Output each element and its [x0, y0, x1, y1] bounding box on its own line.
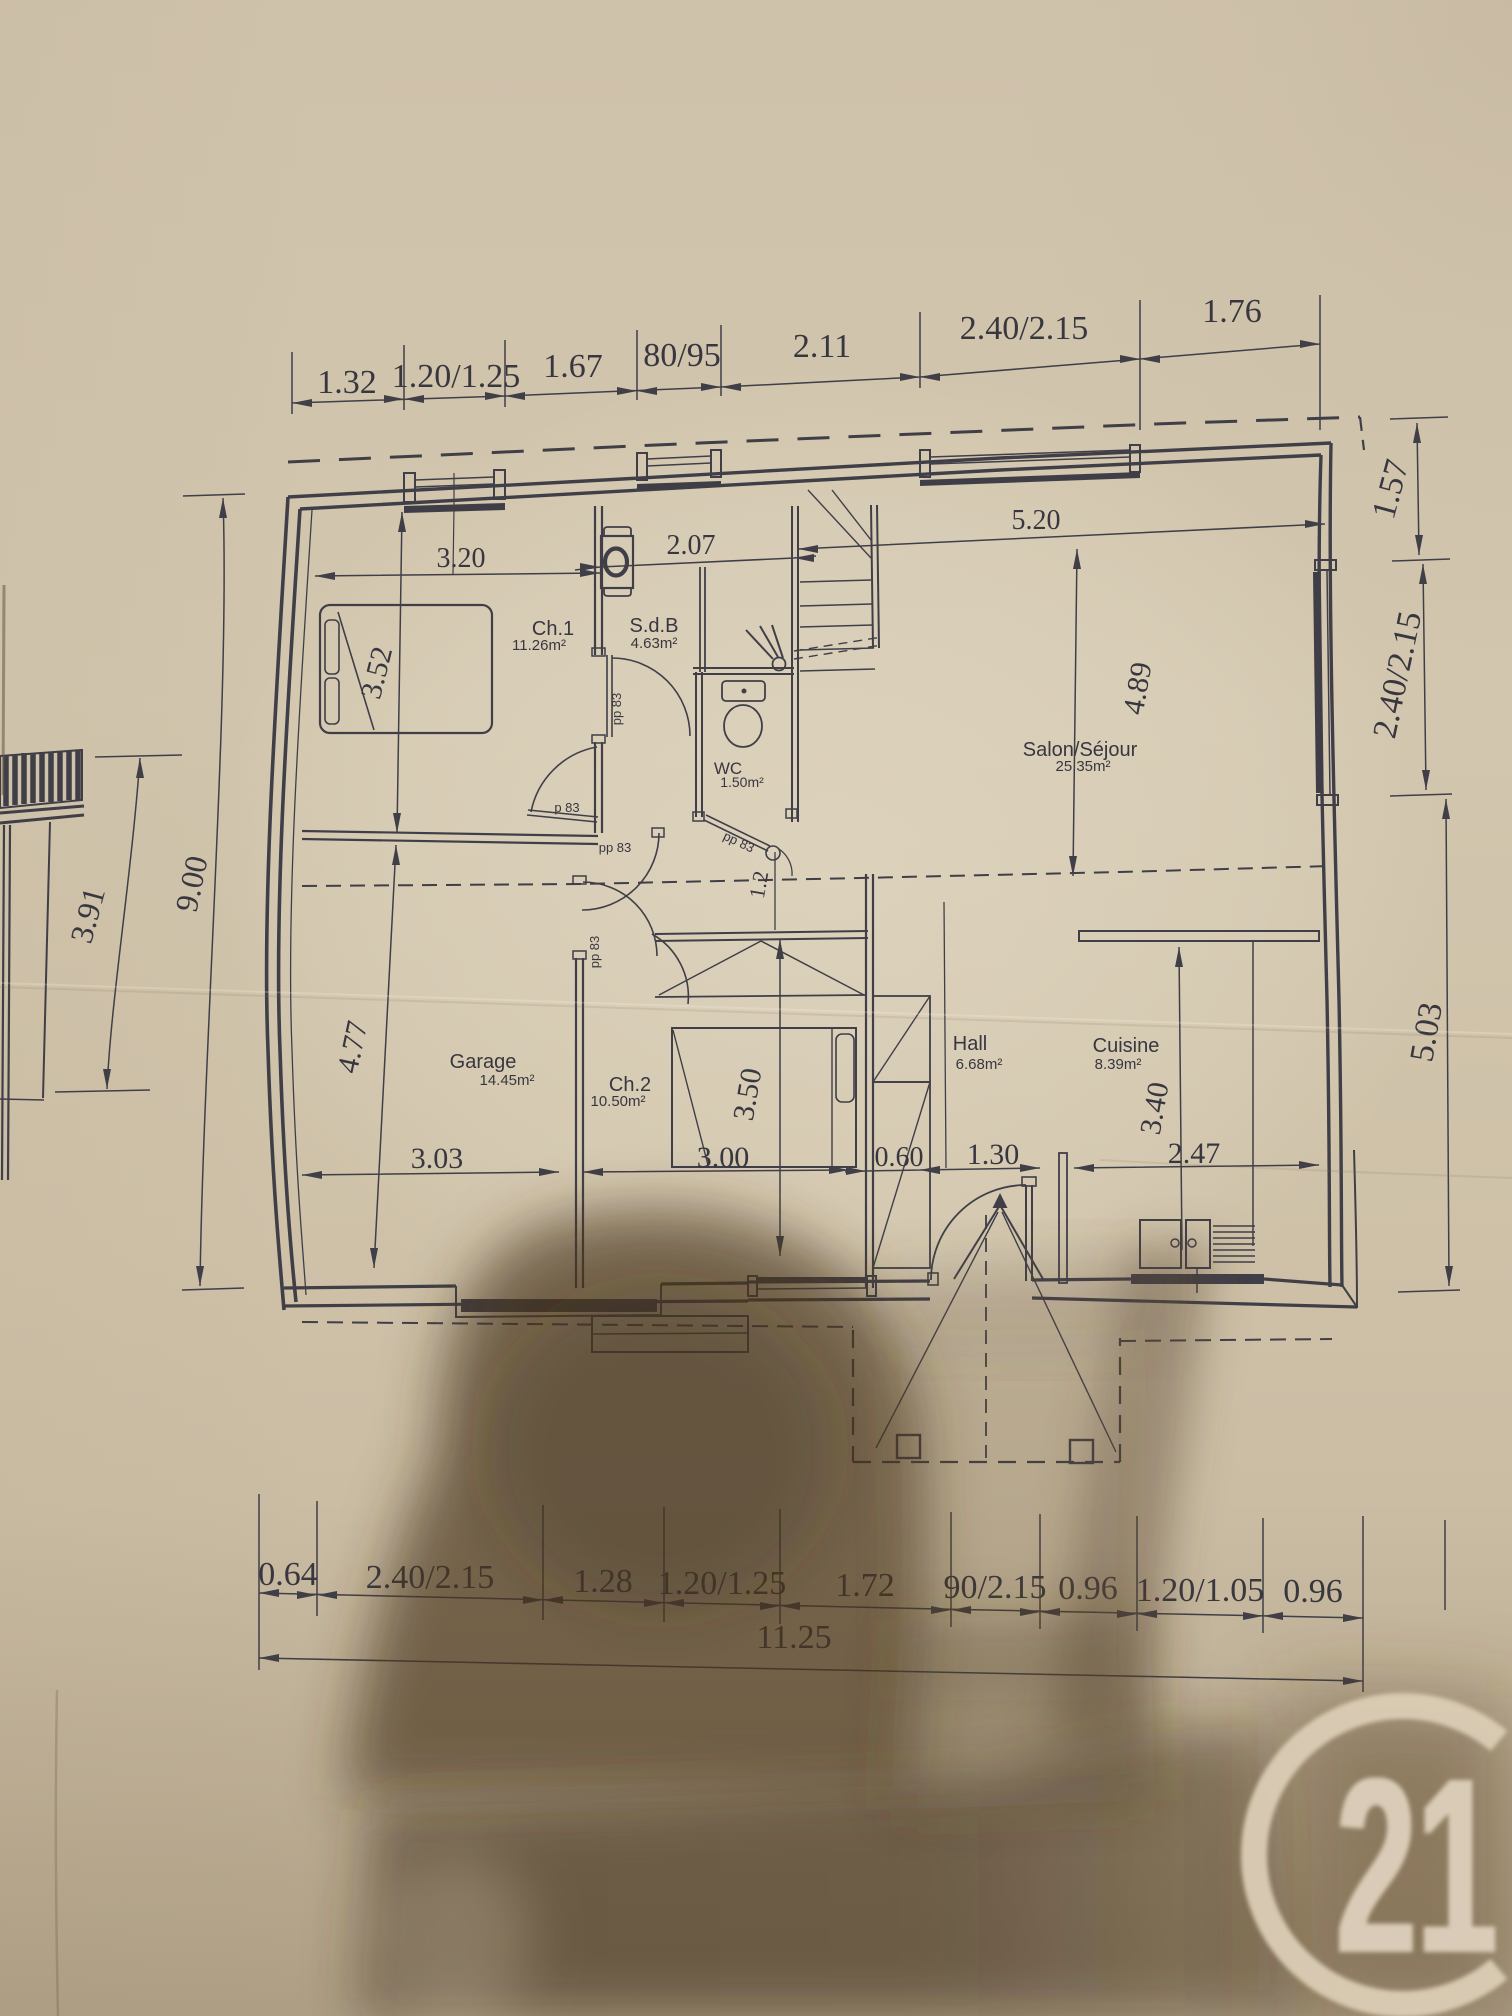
svg-text:1.20/1.25: 1.20/1.25	[392, 358, 520, 395]
svg-text:3.00: 3.00	[697, 1141, 750, 1174]
svg-text:1.50m²: 1.50m²	[720, 774, 764, 790]
svg-text:2.07: 2.07	[667, 530, 716, 561]
svg-text:Garage: Garage	[450, 1051, 517, 1073]
svg-text:2.11: 2.11	[793, 328, 851, 365]
svg-text:1.67: 1.67	[543, 348, 603, 385]
svg-text:10.50m²: 10.50m²	[590, 1093, 645, 1110]
svg-text:8.39m²: 8.39m²	[1095, 1056, 1142, 1073]
svg-text:80/95: 80/95	[643, 337, 720, 374]
svg-text:1.32: 1.32	[317, 364, 377, 401]
svg-text:S.d.B: S.d.B	[630, 615, 679, 637]
svg-text:pp 83: pp 83	[599, 840, 632, 855]
svg-text:1.2: 1.2	[744, 869, 773, 900]
svg-text:Cuisine: Cuisine	[1093, 1035, 1160, 1057]
svg-text:pp 83: pp 83	[609, 693, 624, 726]
svg-text:3.03: 3.03	[411, 1142, 464, 1175]
svg-text:6.68m²: 6.68m²	[956, 1056, 1003, 1073]
svg-text:pp 83: pp 83	[587, 936, 602, 969]
svg-text:1.76: 1.76	[1202, 293, 1262, 330]
svg-text:25.35m²: 25.35m²	[1055, 758, 1110, 775]
svg-text:5.20: 5.20	[1012, 505, 1061, 536]
svg-text:14.45m²: 14.45m²	[479, 1072, 534, 1089]
svg-text:p 83: p 83	[554, 800, 579, 815]
svg-text:1.30: 1.30	[967, 1138, 1020, 1171]
svg-text:21: 21	[1338, 1727, 1499, 2006]
svg-text:4.63m²: 4.63m²	[631, 635, 678, 652]
svg-text:0.60: 0.60	[875, 1142, 924, 1173]
svg-text:3.20: 3.20	[437, 543, 486, 574]
svg-text:Hall: Hall	[953, 1033, 987, 1055]
svg-text:2.40/2.15: 2.40/2.15	[960, 310, 1088, 347]
svg-text:11.26m²: 11.26m²	[512, 637, 566, 654]
